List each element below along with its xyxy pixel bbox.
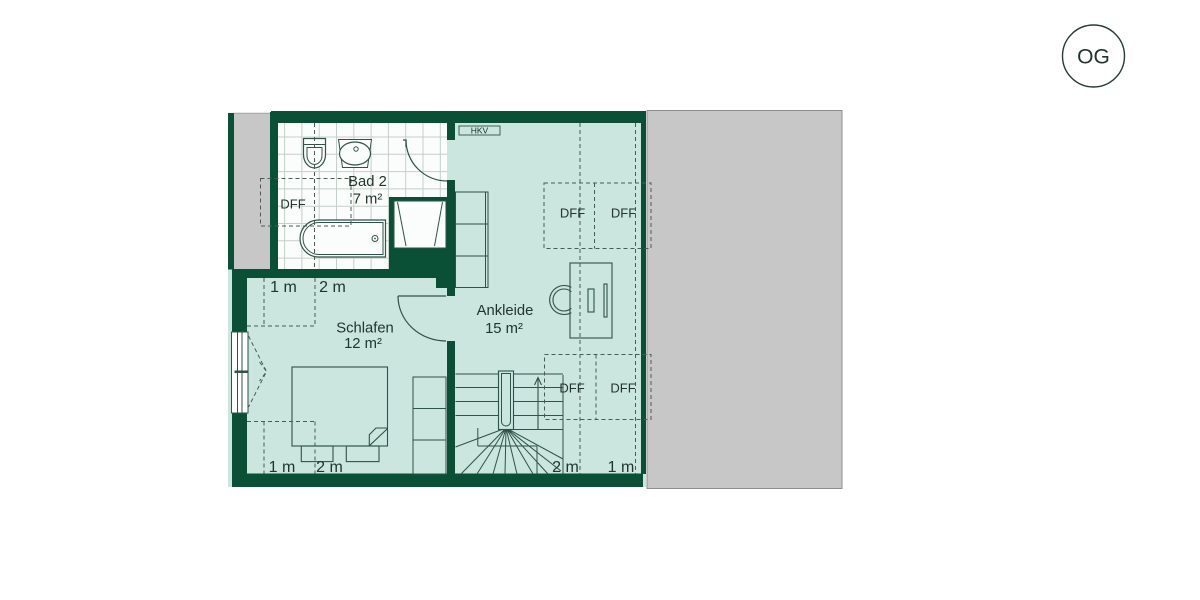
svg-text:DFF: DFF bbox=[559, 381, 584, 396]
svg-text:DFF: DFF bbox=[280, 197, 305, 212]
svg-text:1 m: 1 m bbox=[270, 279, 297, 296]
svg-text:DFF: DFF bbox=[560, 206, 585, 221]
svg-text:7 m²: 7 m² bbox=[353, 192, 383, 208]
svg-text:2 m: 2 m bbox=[552, 459, 579, 476]
svg-text:2 m: 2 m bbox=[319, 279, 346, 296]
svg-text:OG: OG bbox=[1077, 46, 1110, 69]
svg-text:DFF: DFF bbox=[611, 206, 636, 221]
svg-text:2 m: 2 m bbox=[316, 459, 343, 476]
svg-text:Bad 2: Bad 2 bbox=[348, 174, 387, 190]
svg-text:1 m: 1 m bbox=[608, 459, 635, 476]
svg-text:Ankleide: Ankleide bbox=[477, 303, 534, 319]
svg-text:15 m²: 15 m² bbox=[485, 321, 523, 337]
svg-text:Schlafen: Schlafen bbox=[336, 321, 394, 337]
svg-text:DFF: DFF bbox=[610, 381, 635, 396]
svg-text:1 m: 1 m bbox=[269, 459, 296, 476]
svg-text:HKV: HKV bbox=[471, 126, 489, 136]
svg-text:12 m²: 12 m² bbox=[344, 336, 382, 352]
